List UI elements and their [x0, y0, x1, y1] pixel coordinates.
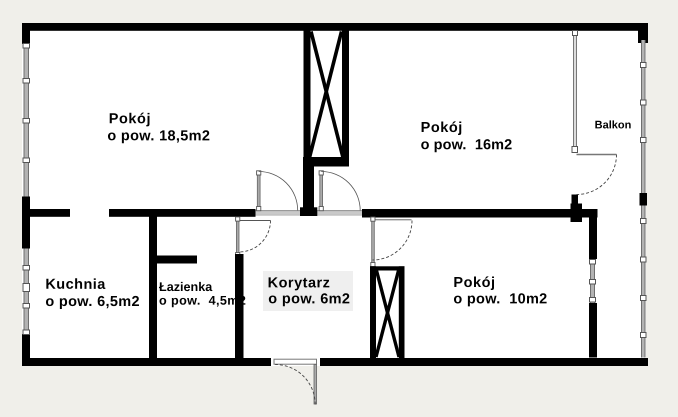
svg-text:Kuchnia: Kuchnia	[45, 277, 106, 293]
svg-text:o pow. 4,5m2: o pow. 4,5m2	[159, 294, 246, 308]
svg-text:Łazienka: Łazienka	[159, 280, 213, 294]
svg-text:Pokój: Pokój	[109, 111, 151, 127]
svg-text:Pokój: Pokój	[421, 120, 463, 136]
svg-text:Balkon: Balkon	[595, 119, 632, 131]
svg-text:o pow. 16m2: o pow. 16m2	[421, 137, 513, 153]
svg-text:o pow. 10m2: o pow. 10m2	[453, 291, 547, 307]
svg-text:o pow. 18,5m2: o pow. 18,5m2	[107, 128, 210, 144]
svg-text:Korytarz: Korytarz	[268, 275, 331, 291]
svg-text:Pokój: Pokój	[453, 275, 495, 291]
svg-text:o pow. 6m2: o pow. 6m2	[268, 291, 350, 307]
svg-text:o pow. 6,5m2: o pow. 6,5m2	[45, 294, 139, 310]
